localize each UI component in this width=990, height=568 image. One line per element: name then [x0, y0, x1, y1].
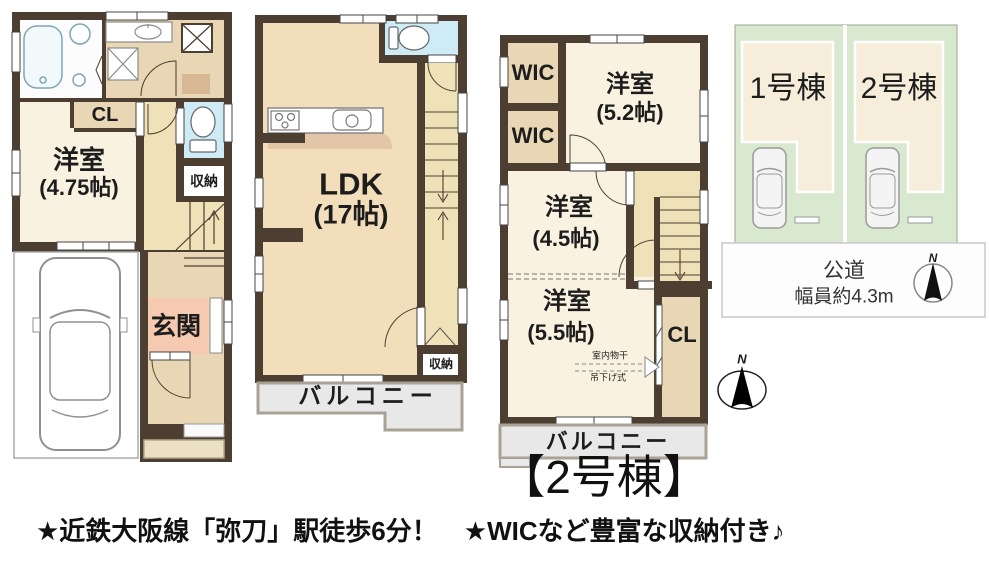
- toilet-icon: [389, 26, 429, 50]
- room-size-label: (4.75帖): [39, 177, 118, 199]
- room-label: 洋室: [606, 73, 654, 97]
- ldk-label: LDK: [319, 169, 383, 200]
- wall-stub: [258, 228, 303, 242]
- room-label: 洋室: [53, 147, 105, 173]
- drying-label: 吊下げ式: [590, 374, 626, 383]
- porch-step: [144, 440, 224, 458]
- closet-label: CL: [92, 105, 119, 125]
- wall-stub: [263, 133, 305, 143]
- door-gap: [626, 171, 634, 205]
- lot1-label: 1号棟: [750, 74, 827, 104]
- door-gap: [638, 281, 656, 289]
- floorplan-3f-svg: [496, 33, 712, 473]
- lot2-label: 2号棟: [861, 74, 938, 104]
- wall-stub: [140, 424, 184, 436]
- wall-stub: [654, 197, 660, 289]
- storage-label: 収納: [190, 174, 218, 188]
- storage-label: 収納: [429, 358, 453, 370]
- floorplan-sheet: CL 洋室 (4.75帖) 収納 玄関 LDK (17帖) 収納 バルコニー W…: [0, 0, 990, 568]
- closet-3f-area: [662, 297, 700, 417]
- room-label: 洋室: [543, 290, 591, 314]
- room-size-label: (5.2帖): [596, 102, 663, 124]
- room-size-label: (4.5帖): [532, 228, 599, 250]
- wic-label: WIC: [512, 125, 555, 147]
- shoe-cabinet: [210, 298, 222, 353]
- car-icon: [866, 148, 899, 228]
- door-gap: [570, 163, 606, 171]
- wall-stub: [417, 63, 425, 288]
- lot-divider: [843, 25, 847, 243]
- ldk-size-label: (17帖): [313, 202, 388, 229]
- washbasin-icon: [106, 22, 172, 42]
- porch-slab: [184, 424, 224, 437]
- room-label: 洋室: [545, 196, 593, 220]
- stairs-2f-area: [425, 63, 458, 375]
- door-gap: [417, 307, 425, 347]
- car-icon: [753, 148, 786, 228]
- door-gap: [428, 55, 456, 63]
- north-label: N: [929, 252, 938, 264]
- parking-stop: [908, 217, 932, 223]
- balcony-label: バルコニー: [298, 385, 438, 408]
- road-label: 公道: [823, 261, 865, 282]
- parking-stop: [795, 217, 819, 223]
- entrance-label: 玄関: [151, 315, 201, 340]
- wall-stub: [74, 128, 136, 132]
- road-width-label: 幅員約4.3m: [794, 288, 893, 307]
- wall-stub: [70, 102, 74, 128]
- corridor-3f-area: [634, 171, 700, 281]
- wall-stub: [379, 21, 385, 55]
- bedroom-45-area: [508, 171, 626, 277]
- closet-door: [656, 305, 662, 385]
- corridor-1f-area: [144, 102, 176, 250]
- catchphrase: ★近鉄大阪線「弥刀」駅徒歩6分！ ★WICなど豊富な収納付き♪: [36, 518, 785, 544]
- building-title: 【2号棟】: [499, 454, 709, 500]
- north-label: N: [737, 353, 746, 366]
- car-icon: [33, 258, 127, 450]
- wic-label: WIC: [512, 62, 555, 84]
- floorplan-1f-svg: [8, 8, 238, 464]
- washing-machine-icon: [108, 48, 138, 80]
- toilet-icon: [190, 107, 216, 152]
- bench-area: [182, 74, 210, 94]
- balcony-label: バルコニー: [546, 431, 671, 453]
- drying-label: 室内物干: [592, 352, 628, 361]
- wall-stub: [417, 354, 423, 375]
- closet-label: CL: [667, 324, 696, 346]
- room-size-label: (5.5帖): [527, 322, 594, 344]
